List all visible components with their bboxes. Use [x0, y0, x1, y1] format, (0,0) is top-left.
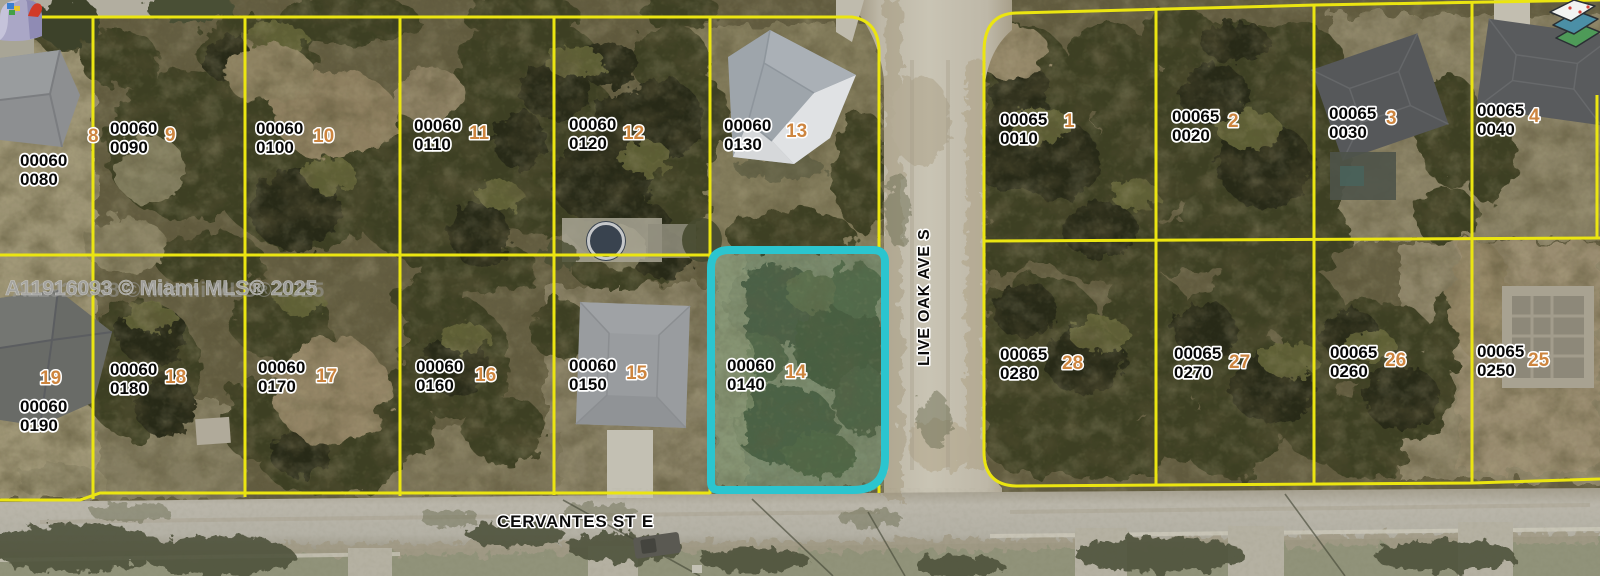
svg-text:00065: 00065: [1477, 101, 1524, 120]
svg-text:3: 3: [1386, 108, 1397, 129]
svg-text:00060: 00060: [569, 115, 616, 134]
svg-text:00060: 00060: [727, 356, 774, 375]
svg-text:9: 9: [165, 125, 176, 146]
svg-text:0100: 0100: [256, 138, 294, 157]
svg-text:10: 10: [313, 126, 334, 147]
svg-text:00065: 00065: [1477, 342, 1524, 361]
svg-text:1: 1: [1064, 111, 1075, 132]
svg-text:26: 26: [1385, 350, 1406, 371]
svg-text:28: 28: [1062, 353, 1083, 374]
svg-text:00060: 00060: [20, 151, 67, 170]
svg-text:00065: 00065: [1174, 344, 1221, 363]
svg-text:0090: 0090: [110, 138, 148, 157]
svg-text:0110: 0110: [414, 135, 451, 154]
svg-text:8: 8: [88, 126, 99, 147]
svg-text:00060: 00060: [256, 119, 303, 138]
svg-text:0260: 0260: [1330, 362, 1368, 381]
svg-text:00060: 00060: [416, 357, 463, 376]
svg-text:18: 18: [165, 367, 186, 388]
svg-text:00060: 00060: [258, 358, 305, 377]
svg-text:19: 19: [40, 368, 61, 389]
svg-text:0280: 0280: [1000, 364, 1038, 383]
svg-text:15: 15: [626, 363, 648, 384]
svg-text:CERVANTES ST E: CERVANTES ST E: [497, 512, 654, 531]
svg-text:00060: 00060: [110, 360, 157, 379]
svg-text:0150: 0150: [569, 375, 607, 394]
svg-text:17: 17: [316, 366, 337, 387]
svg-text:00065: 00065: [1329, 104, 1376, 123]
svg-text:2: 2: [1228, 111, 1239, 132]
svg-text:00060: 00060: [414, 116, 461, 135]
svg-text:27: 27: [1229, 352, 1250, 373]
svg-text:16: 16: [475, 365, 496, 386]
svg-text:0190: 0190: [20, 416, 58, 435]
svg-text:0180: 0180: [110, 379, 148, 398]
svg-text:00065: 00065: [1000, 110, 1047, 129]
svg-text:0270: 0270: [1174, 363, 1212, 382]
svg-text:00060: 00060: [569, 356, 616, 375]
svg-text:0160: 0160: [416, 376, 454, 395]
svg-text:00060: 00060: [724, 116, 771, 135]
svg-text:0130: 0130: [724, 135, 762, 154]
svg-text:0030: 0030: [1329, 123, 1367, 142]
svg-text:00065: 00065: [1330, 343, 1377, 362]
svg-text:00060: 00060: [20, 397, 67, 416]
svg-text:0250: 0250: [1477, 361, 1515, 380]
svg-text:LIVE OAK AVE S: LIVE OAK AVE S: [916, 229, 933, 366]
svg-text:00060: 00060: [110, 119, 157, 138]
svg-text:0170: 0170: [258, 377, 296, 396]
svg-text:0010: 0010: [1000, 129, 1038, 148]
svg-text:0040: 0040: [1477, 120, 1515, 139]
svg-text:0120: 0120: [569, 134, 607, 153]
svg-text:11: 11: [469, 123, 490, 144]
svg-text:0020: 0020: [1172, 126, 1210, 145]
svg-text:0140: 0140: [727, 375, 765, 394]
svg-text:00065: 00065: [1000, 345, 1047, 364]
svg-text:4: 4: [1529, 106, 1540, 127]
svg-text:A11916093 © Miami MLS® 2025: A11916093 © Miami MLS® 2025: [5, 277, 318, 300]
svg-text:00065: 00065: [1172, 107, 1219, 126]
svg-text:14: 14: [785, 362, 807, 383]
svg-text:12: 12: [623, 123, 644, 144]
svg-text:13: 13: [786, 121, 807, 142]
svg-text:0080: 0080: [20, 170, 58, 189]
svg-text:25: 25: [1528, 350, 1550, 371]
